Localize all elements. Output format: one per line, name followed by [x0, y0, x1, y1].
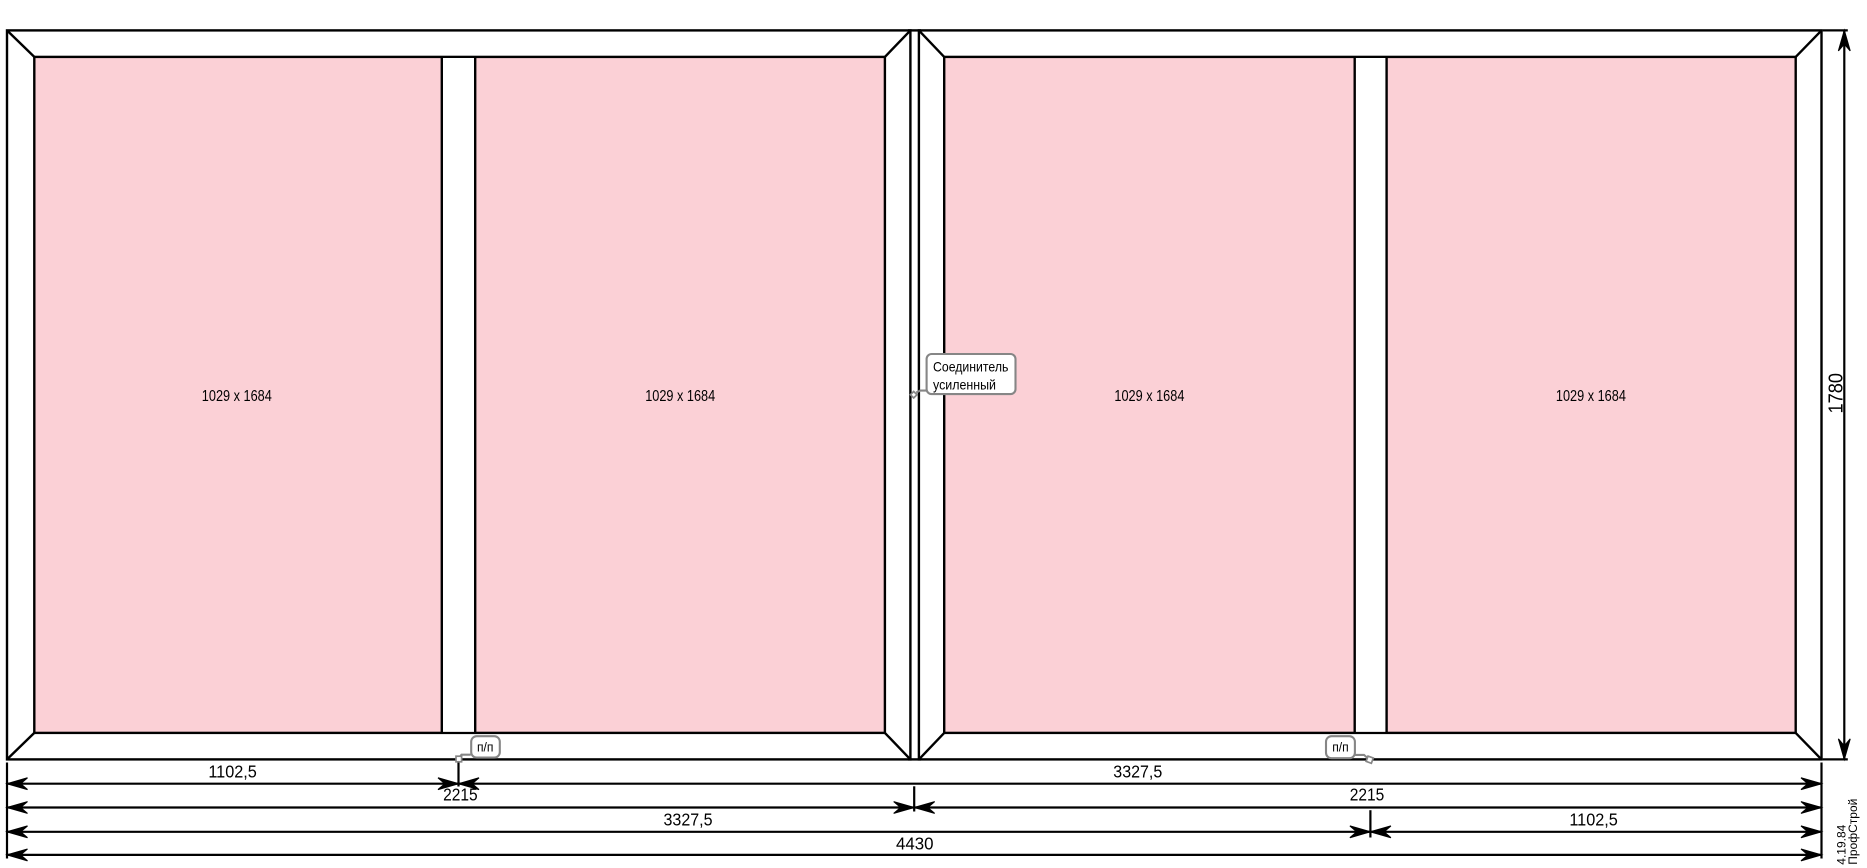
svg-text:4430: 4430 [896, 833, 934, 853]
svg-text:3327,5: 3327,5 [1113, 762, 1162, 782]
svg-text:2215: 2215 [1350, 785, 1385, 805]
svg-text:п/п: п/п [1332, 740, 1349, 755]
svg-text:1029 x 1684: 1029 x 1684 [645, 388, 715, 405]
svg-text:ПрофСтрой: ПрофСтрой [1846, 799, 1860, 865]
svg-text:3327,5: 3327,5 [664, 810, 713, 830]
svg-text:Соединитель: Соединитель [933, 358, 1008, 374]
svg-text:усиленный: усиленный [933, 376, 996, 392]
svg-text:1029 x 1684: 1029 x 1684 [1114, 388, 1184, 405]
svg-text:2215: 2215 [443, 785, 478, 805]
svg-text:1029 x 1684: 1029 x 1684 [202, 388, 272, 405]
svg-text:1102,5: 1102,5 [208, 762, 257, 782]
svg-text:1780: 1780 [1825, 373, 1847, 414]
svg-text:1102,5: 1102,5 [1569, 810, 1618, 830]
svg-text:п/п: п/п [477, 740, 494, 755]
svg-text:1029 x 1684: 1029 x 1684 [1556, 388, 1626, 405]
